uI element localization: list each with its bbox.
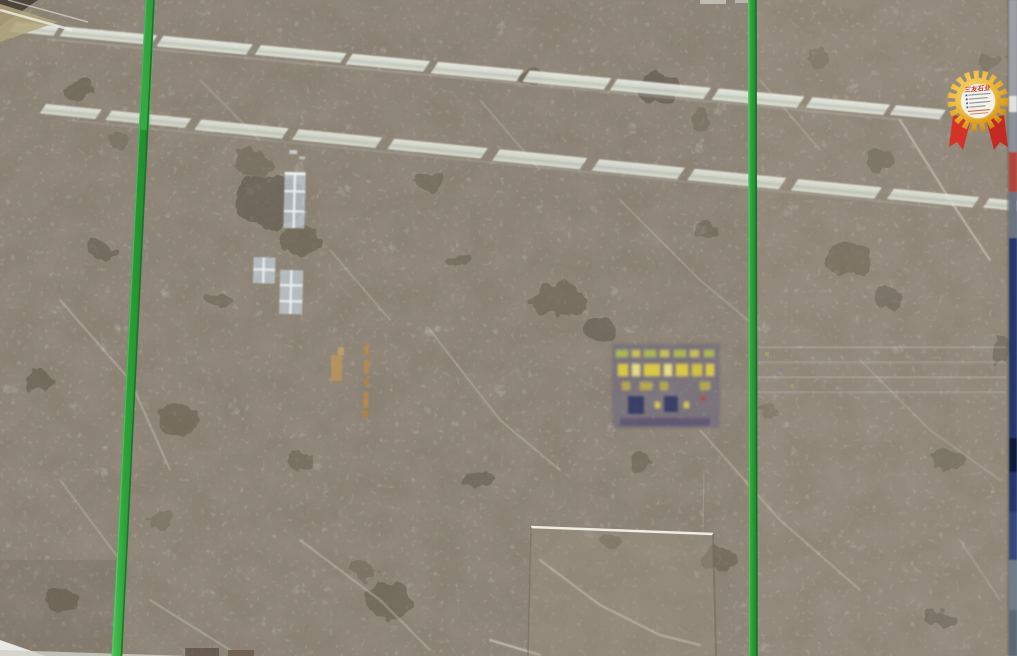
photo-right-edge-background	[1007, 0, 1017, 656]
sign-reflection	[612, 344, 720, 428]
photo-canvas: 三友石业	[0, 0, 1017, 656]
bottom-left-shade	[0, 560, 120, 656]
right-strap	[748, 0, 758, 656]
marble-slab-photo: 三友石业	[0, 0, 1017, 656]
small-slab	[528, 527, 716, 656]
